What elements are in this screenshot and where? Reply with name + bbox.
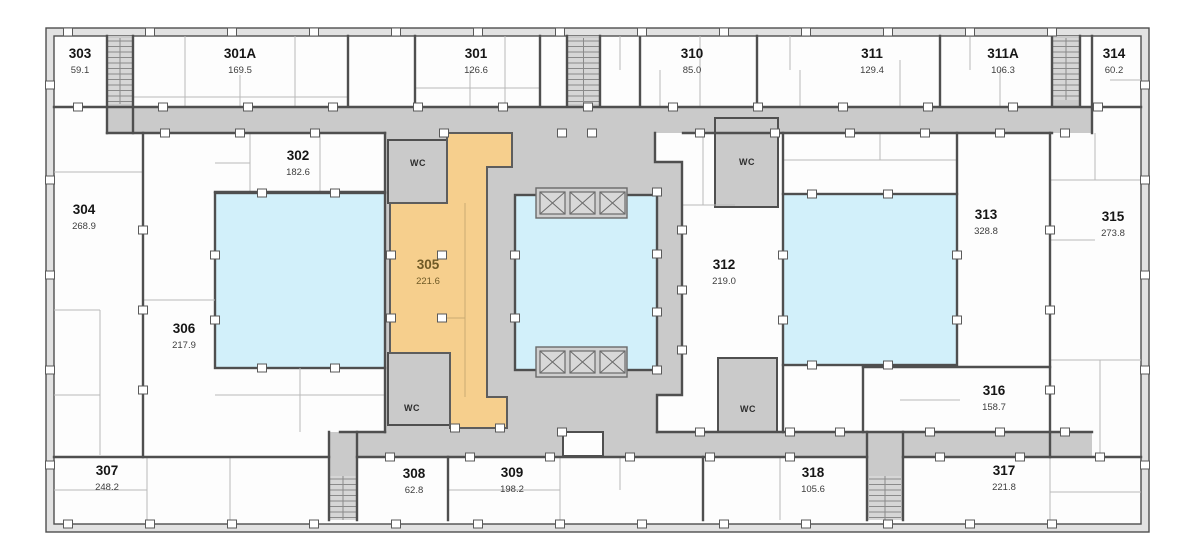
door-marker <box>696 129 705 137</box>
door-marker <box>626 453 635 461</box>
door-marker <box>228 520 237 528</box>
door-marker <box>720 28 729 36</box>
room-number: 314 <box>1103 46 1126 61</box>
room-area: 85.0 <box>683 65 702 76</box>
wc-block-lower-right <box>718 358 777 432</box>
room-number: 318 <box>802 465 825 480</box>
room-number: 301 <box>465 46 488 61</box>
room-number: 301A <box>224 46 257 61</box>
door-marker <box>392 28 401 36</box>
door-marker <box>678 226 687 234</box>
door-marker <box>584 103 593 111</box>
door-marker <box>161 129 170 137</box>
door-marker <box>258 189 267 197</box>
room-area: 198.2 <box>500 484 524 495</box>
open-zone-center-atrium[interactable] <box>515 195 657 370</box>
door-marker <box>779 251 788 259</box>
door-marker <box>786 428 795 436</box>
door-marker <box>228 28 237 36</box>
door-marker <box>678 346 687 354</box>
door-marker <box>556 520 565 528</box>
room-number: 313 <box>975 207 998 222</box>
door-marker <box>244 103 253 111</box>
wc-block-lower-left <box>388 353 450 425</box>
door-marker <box>211 251 220 259</box>
door-marker <box>638 28 647 36</box>
door-marker <box>64 520 73 528</box>
door-marker <box>771 129 780 137</box>
door-marker <box>46 81 55 89</box>
door-marker <box>884 520 893 528</box>
door-marker <box>1141 461 1150 469</box>
door-marker <box>331 189 340 197</box>
room-number: 307 <box>96 463 119 478</box>
door-marker <box>926 428 935 436</box>
door-marker <box>311 129 320 137</box>
door-marker <box>474 28 483 36</box>
door-marker <box>159 103 168 111</box>
door-marker <box>392 520 401 528</box>
room-area: 105.6 <box>801 484 825 495</box>
room-area: 248.2 <box>95 482 119 493</box>
door-marker <box>1046 226 1055 234</box>
door-marker <box>720 520 729 528</box>
door-marker <box>696 428 705 436</box>
door-marker <box>139 226 148 234</box>
door-marker <box>638 520 647 528</box>
room-number: 304 <box>73 202 96 217</box>
door-marker <box>808 361 817 369</box>
door-marker <box>802 28 811 36</box>
room-area: 221.6 <box>416 276 440 287</box>
door-marker <box>706 453 715 461</box>
door-marker <box>414 103 423 111</box>
door-marker <box>146 520 155 528</box>
door-marker <box>496 424 505 432</box>
wc-label: WC <box>410 158 426 168</box>
door-marker <box>236 129 245 137</box>
open-zone-left[interactable] <box>215 193 385 368</box>
door-marker <box>966 28 975 36</box>
room-number: 310 <box>681 46 704 61</box>
door-marker <box>451 424 460 432</box>
door-marker <box>387 314 396 322</box>
door-marker <box>310 520 319 528</box>
door-marker <box>558 428 567 436</box>
door-marker <box>440 129 449 137</box>
door-marker <box>884 361 893 369</box>
door-marker <box>996 129 1005 137</box>
open-zone-right[interactable] <box>783 194 957 365</box>
door-marker <box>387 251 396 259</box>
door-marker <box>802 520 811 528</box>
room-area: 60.2 <box>1105 65 1124 76</box>
door-marker <box>779 316 788 324</box>
door-marker <box>1141 271 1150 279</box>
room-number: 306 <box>173 321 196 336</box>
door-marker <box>653 250 662 258</box>
door-marker <box>808 190 817 198</box>
door-marker <box>139 386 148 394</box>
door-marker <box>846 129 855 137</box>
door-marker <box>558 129 567 137</box>
door-marker <box>499 103 508 111</box>
door-marker <box>331 364 340 372</box>
room-area: 158.7 <box>982 402 1006 413</box>
door-marker <box>258 364 267 372</box>
door-marker <box>438 314 447 322</box>
door-marker <box>1048 28 1057 36</box>
door-marker <box>669 103 678 111</box>
wc-label: WC <box>404 403 420 413</box>
door-marker <box>884 28 893 36</box>
door-marker <box>836 428 845 436</box>
door-marker <box>653 188 662 196</box>
door-marker <box>386 453 395 461</box>
door-marker <box>678 286 687 294</box>
room-area: 328.8 <box>974 226 998 237</box>
floor-plan-canvas: 30359.1301A169.5301126.631085.0311129.43… <box>0 0 1200 559</box>
door-marker <box>966 520 975 528</box>
room-number: 317 <box>993 463 1016 478</box>
door-marker <box>996 428 1005 436</box>
room-number: 309 <box>501 465 524 480</box>
door-marker <box>474 520 483 528</box>
core-notch-bottom <box>657 395 682 432</box>
door-marker <box>953 251 962 259</box>
room-area: 129.4 <box>860 65 884 76</box>
room-area: 62.8 <box>405 485 424 496</box>
core-notch-top <box>655 133 682 162</box>
door-marker <box>1061 129 1070 137</box>
room-number: 315 <box>1102 209 1125 224</box>
wc-label: WC <box>739 157 755 167</box>
door-marker <box>64 28 73 36</box>
door-marker <box>1096 453 1105 461</box>
door-marker <box>466 453 475 461</box>
door-marker <box>1046 306 1055 314</box>
door-marker <box>556 28 565 36</box>
door-marker <box>884 190 893 198</box>
door-marker <box>511 314 520 322</box>
door-marker <box>46 461 55 469</box>
room-number: 316 <box>983 383 1006 398</box>
door-marker <box>46 271 55 279</box>
door-marker <box>74 103 83 111</box>
room-area: 268.9 <box>72 221 96 232</box>
door-marker <box>936 453 945 461</box>
floor-plan-svg: 30359.1301A169.5301126.631085.0311129.43… <box>0 0 1200 559</box>
room-area: 221.8 <box>992 482 1016 493</box>
vestibule <box>563 432 603 456</box>
door-marker <box>546 453 555 461</box>
door-marker <box>1094 103 1103 111</box>
room-area: 169.5 <box>228 65 252 76</box>
door-marker <box>921 129 930 137</box>
room-number: 312 <box>713 257 736 272</box>
door-marker <box>1141 176 1150 184</box>
door-marker <box>1061 428 1070 436</box>
door-marker <box>310 28 319 36</box>
room-area: 106.3 <box>991 65 1015 76</box>
room-area: 59.1 <box>71 65 90 76</box>
door-marker <box>139 306 148 314</box>
door-marker <box>953 316 962 324</box>
door-marker <box>839 103 848 111</box>
wc-block-upper-left <box>388 140 448 203</box>
door-marker <box>1048 520 1057 528</box>
door-marker <box>924 103 933 111</box>
room-number: 311A <box>987 46 1019 61</box>
door-marker <box>46 176 55 184</box>
room-number: 311 <box>861 46 883 61</box>
room-area: 273.8 <box>1101 228 1125 239</box>
room-number: 305 <box>417 257 440 272</box>
room-area: 219.0 <box>712 276 736 287</box>
door-marker <box>329 103 338 111</box>
room-number: 303 <box>69 46 92 61</box>
door-marker <box>1016 453 1025 461</box>
door-marker <box>786 453 795 461</box>
wc-label: WC <box>740 404 756 414</box>
door-marker <box>1009 103 1018 111</box>
room-number: 308 <box>403 466 426 481</box>
door-marker <box>146 28 155 36</box>
room-area: 217.9 <box>172 340 196 351</box>
door-marker <box>754 103 763 111</box>
door-marker <box>653 366 662 374</box>
door-marker <box>653 308 662 316</box>
room-area: 126.6 <box>464 65 488 76</box>
door-marker <box>1046 386 1055 394</box>
door-marker <box>1141 366 1150 374</box>
room-number: 302 <box>287 148 310 163</box>
door-marker <box>511 251 520 259</box>
door-marker <box>211 316 220 324</box>
door-marker <box>588 129 597 137</box>
door-marker <box>46 366 55 374</box>
room-area: 182.6 <box>286 167 310 178</box>
door-marker <box>1141 81 1150 89</box>
